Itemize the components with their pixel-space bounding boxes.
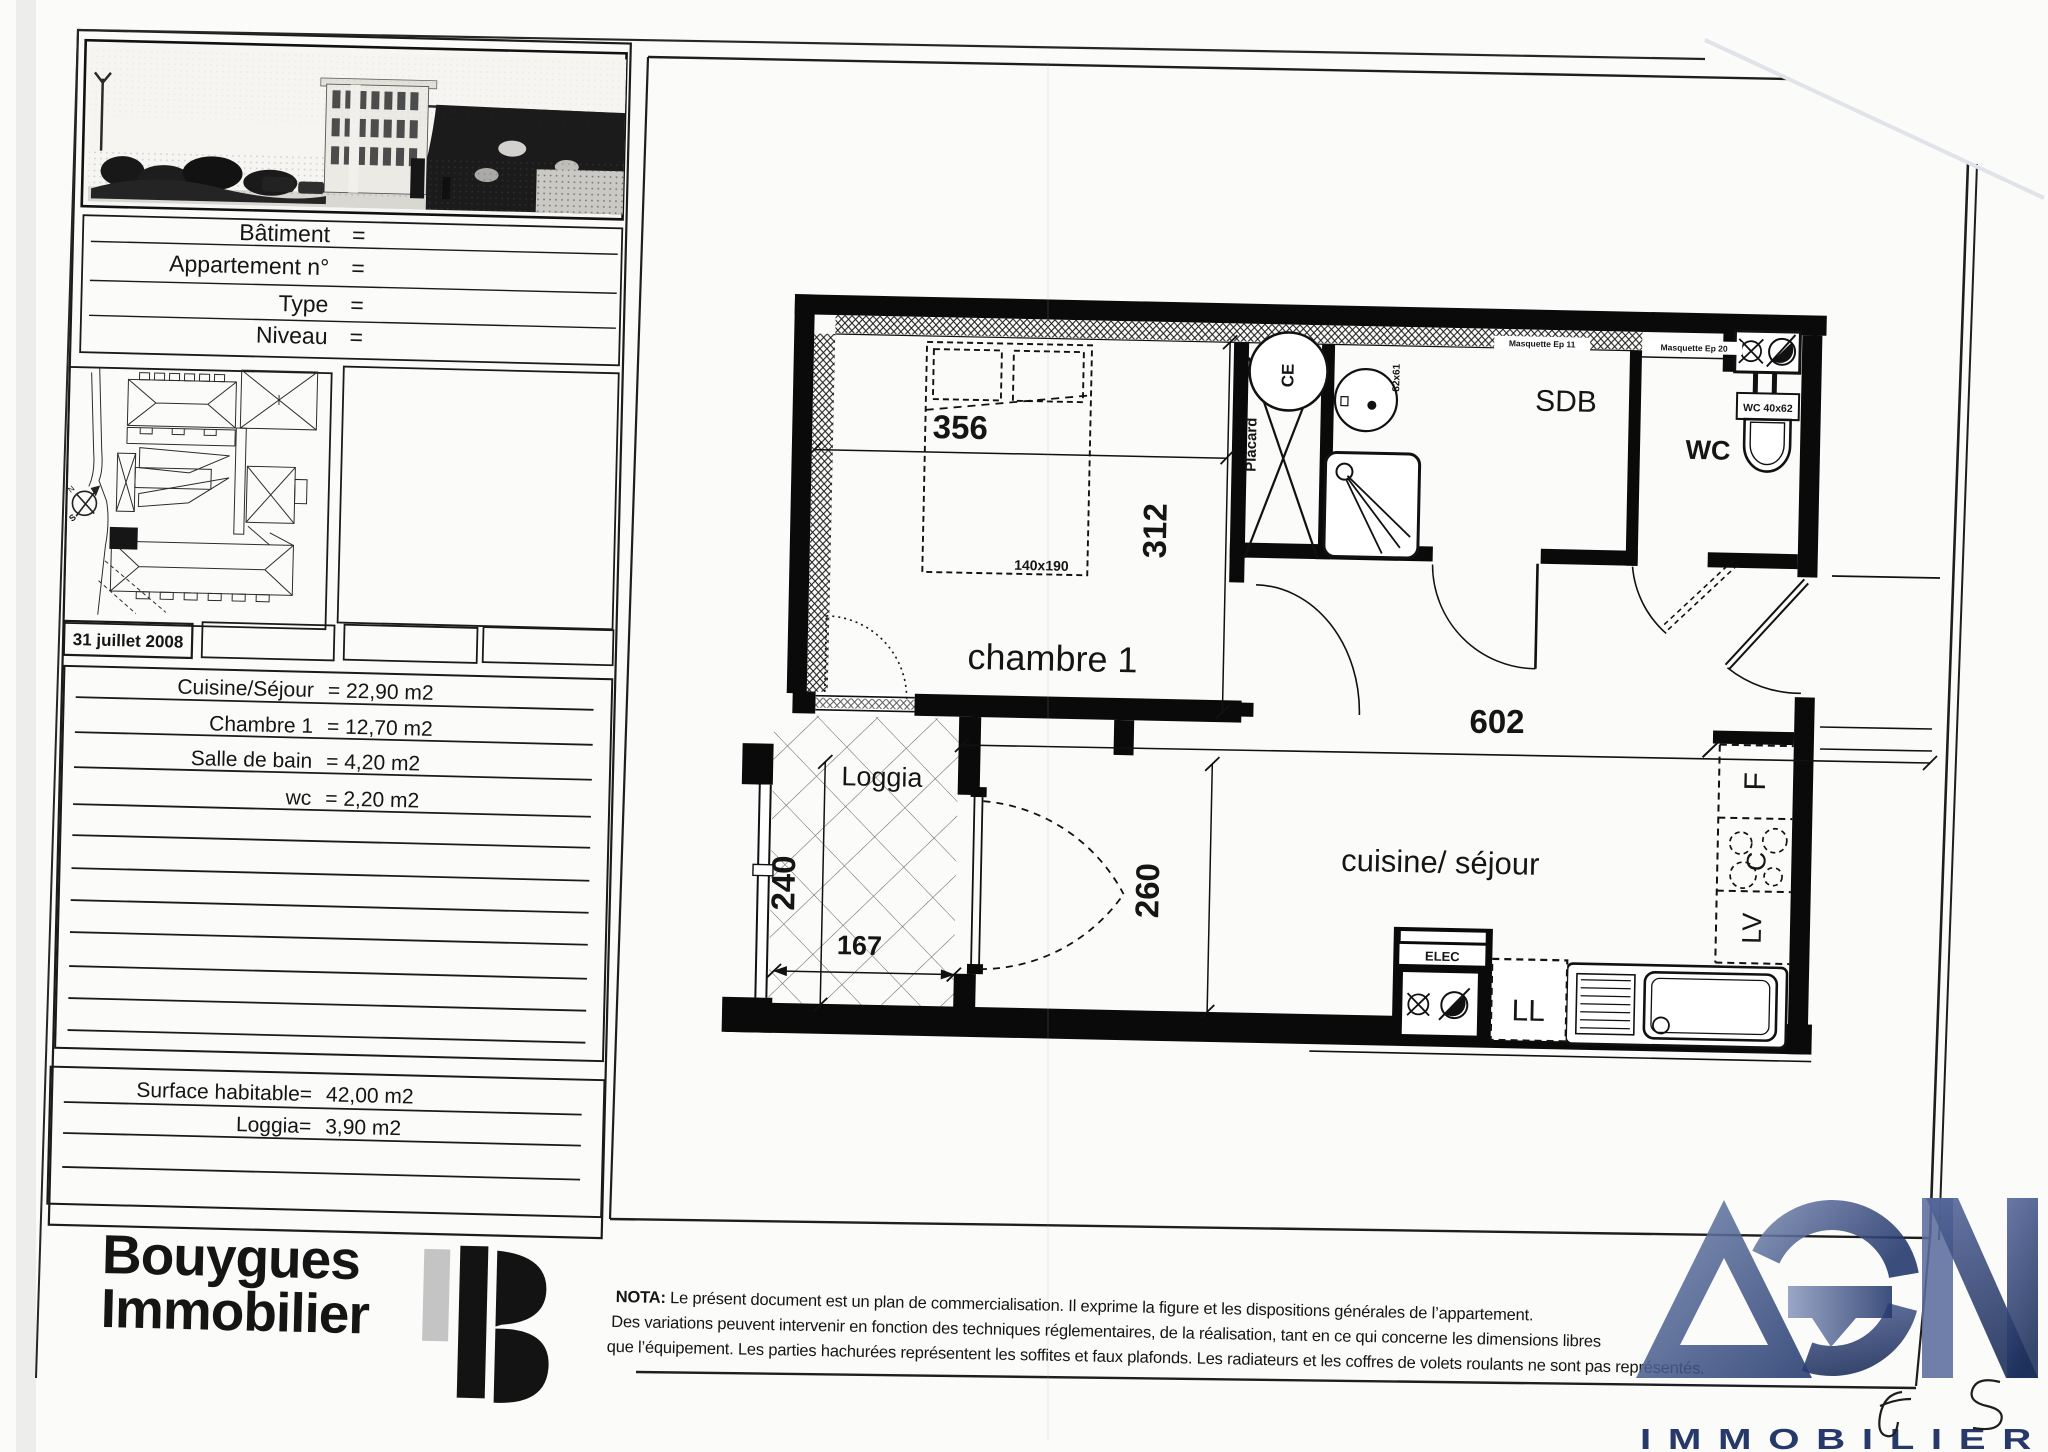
svg-text:Bâtiment: Bâtiment <box>239 219 331 247</box>
svg-text:602: 602 <box>1469 703 1524 740</box>
svg-text:wc: wc <box>284 786 311 810</box>
svg-text:LV: LV <box>1737 912 1768 944</box>
svg-text:= 22,90 m2: = 22,90 m2 <box>328 679 434 705</box>
svg-text:= 4,20 m2: = 4,20 m2 <box>326 750 421 775</box>
svg-text:CE: CE <box>1278 363 1297 387</box>
svg-text:Loggia: Loggia <box>841 761 924 793</box>
svg-text:312: 312 <box>1136 503 1174 559</box>
svg-text:Niveau: Niveau <box>256 321 328 349</box>
svg-text:Masquette Ep 20: Masquette Ep 20 <box>1660 342 1728 353</box>
svg-text:= 2,20 m2: = 2,20 m2 <box>325 787 420 812</box>
svg-text:= 12,70 m2: = 12,70 m2 <box>327 715 433 741</box>
svg-text:Immobilier: Immobilier <box>100 1277 370 1346</box>
svg-text:=: = <box>349 324 363 350</box>
svg-text:356: 356 <box>932 408 988 446</box>
svg-text:C: C <box>1741 851 1771 871</box>
svg-text:Appartement n°: Appartement n° <box>169 250 330 280</box>
svg-text:140x190: 140x190 <box>1014 557 1069 574</box>
svg-text:=: = <box>351 255 365 281</box>
svg-text:=: = <box>352 222 366 248</box>
svg-text:Chambre 1: Chambre 1 <box>209 712 313 738</box>
svg-text:WC: WC <box>1685 435 1731 466</box>
svg-text:31 juillet 2008: 31 juillet 2008 <box>73 630 184 652</box>
svg-text:Masquette Ep 11: Masquette Ep 11 <box>1509 338 1576 349</box>
svg-text:Plàcard: Plàcard <box>1242 417 1260 472</box>
svg-text:Salle de bain: Salle de bain <box>191 747 313 773</box>
svg-text:ELEC: ELEC <box>1425 948 1461 964</box>
svg-text:Type: Type <box>278 290 328 317</box>
svg-text:cuisine/ séjour: cuisine/ séjour <box>1341 843 1540 882</box>
svg-text:Surface habitable=: Surface habitable= <box>136 1079 312 1106</box>
svg-text:chambre 1: chambre 1 <box>967 636 1138 681</box>
svg-text:WC 40x62: WC 40x62 <box>1743 402 1793 415</box>
svg-text:=: = <box>350 292 364 318</box>
svg-text:SDB: SDB <box>1535 385 1597 419</box>
svg-text:167: 167 <box>837 930 883 961</box>
svg-text:42,00 m2: 42,00 m2 <box>326 1083 414 1108</box>
svg-text:3,90 m2: 3,90 m2 <box>325 1115 401 1140</box>
svg-text:Cuisine/Séjour: Cuisine/Séjour <box>177 676 314 702</box>
svg-text:F: F <box>1739 772 1772 791</box>
svg-text:240: 240 <box>764 855 802 911</box>
svg-text:260: 260 <box>1128 863 1166 919</box>
svg-text:Loggia=: Loggia= <box>236 1113 312 1138</box>
svg-text:82x61: 82x61 <box>1391 363 1403 391</box>
svg-text:LL: LL <box>1511 994 1545 1028</box>
